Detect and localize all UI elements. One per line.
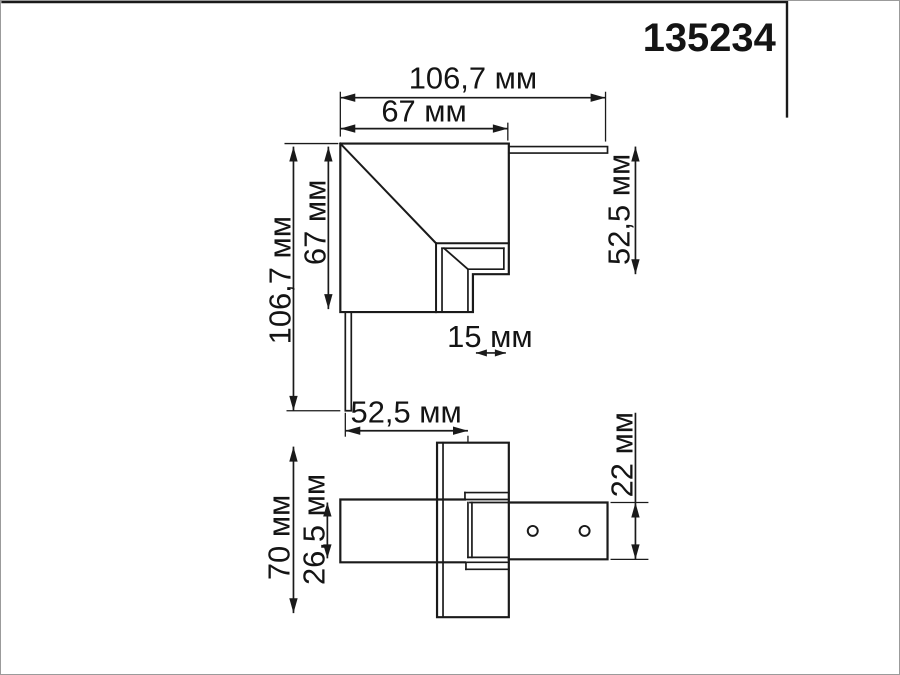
drawing-canvas: 135234 [0, 0, 900, 675]
dim-label-total-height: 106,7 мм [262, 216, 297, 344]
dim-label-total-height: 70 мм [261, 495, 296, 580]
dim-label-side-height: 52,5 мм [601, 154, 636, 265]
arrowheads-top-view [289, 94, 639, 411]
dim-label-slot-width: 15 мм [447, 319, 532, 354]
dim-label-body-width: 67 мм [381, 94, 466, 129]
side-view-left-arm [340, 500, 465, 563]
part-number: 135234 [643, 16, 776, 60]
side-view: 52,5 мм 70 мм 26,5 мм 22 мм [261, 395, 648, 617]
dim-label-connector-height: 22 мм [604, 412, 639, 497]
arrowheads-side-view [289, 427, 639, 614]
dim-label-track-height: 26,5 мм [296, 474, 331, 585]
right-connector-bar [509, 147, 608, 153]
technical-drawing: 135234 [1, 1, 899, 674]
channel-chamfer [444, 248, 468, 269]
screw-hole-right [580, 526, 590, 536]
top-view-diagonal [340, 144, 436, 244]
dim-label-arm-length: 52,5 мм [351, 395, 462, 430]
top-view: 106,7 мм 67 мм 106,7 мм 67 мм 52,5 мм 15… [262, 61, 639, 411]
side-view-vertical-body [437, 443, 509, 617]
dim-label-body-height: 67 мм [297, 180, 332, 265]
side-view-connector-plate [509, 503, 608, 560]
dim-label-total-width: 106,7 мм [409, 61, 537, 96]
screw-hole-left [528, 526, 538, 536]
